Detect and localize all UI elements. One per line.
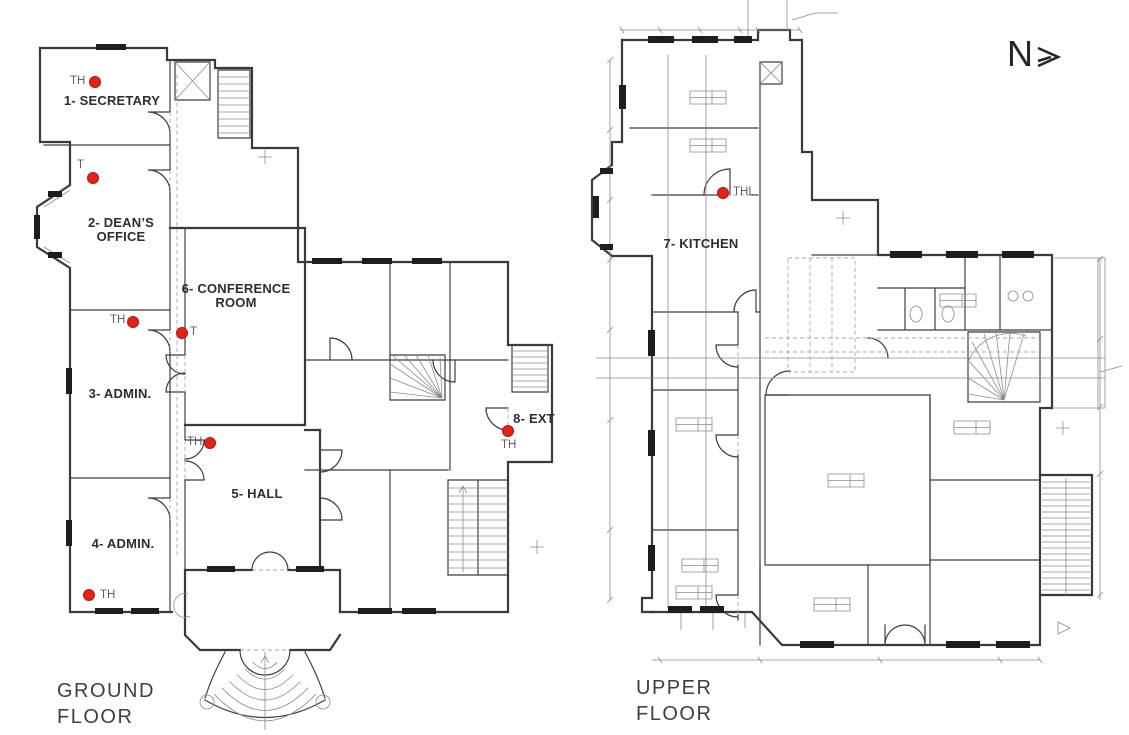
room-label-text: 8- EXT	[513, 412, 555, 426]
sensor-dot-hall	[204, 437, 216, 449]
sensor-label-hall: TH	[187, 436, 202, 448]
upper-floor-linework	[592, 0, 1122, 663]
room-label-admin-4: 4- ADMIN.	[92, 537, 155, 551]
room-label-ext: 8- EXT	[513, 412, 555, 426]
north-indicator: N	[1007, 36, 1061, 72]
room-label-secretary: 1- SECRETARY	[64, 94, 160, 108]
room-label-admin-3: 3- ADMIN.	[89, 387, 152, 401]
sensor-dot-conference-room	[176, 327, 188, 339]
room-label-text: 4- ADMIN.	[92, 537, 155, 551]
room-label-text: 6- CONFERENCE	[182, 282, 291, 296]
sensor-dot-admin-3	[127, 316, 139, 328]
sensor-label-conference-room: T	[190, 326, 197, 338]
sensor-label-admin-4: TH	[100, 589, 115, 601]
plan-linework	[0, 0, 1129, 735]
sensor-label-admin-3: TH	[110, 314, 125, 326]
sensor-dot-admin-4	[83, 589, 95, 601]
north-arrow-icon	[1035, 45, 1061, 69]
sensor-dot-kitchen	[717, 187, 729, 199]
room-label-text: 5- HALL	[231, 487, 282, 501]
room-label-text: 1- SECRETARY	[64, 94, 160, 108]
sensor-label-kitchen: THL	[733, 186, 755, 198]
floor-title-line: FLOOR	[636, 701, 712, 727]
sensor-label-deans-office: T	[77, 159, 84, 171]
room-label-text: 7- KITCHEN	[664, 237, 739, 251]
floor-title-line: UPPER	[636, 675, 712, 701]
room-label-text: ROOM	[182, 296, 291, 310]
room-label-conference-room: 6- CONFERENCE ROOM	[182, 282, 291, 310]
room-label-text: 3- ADMIN.	[89, 387, 152, 401]
north-label: N	[1007, 36, 1033, 72]
room-label-kitchen: 7- KITCHEN	[664, 237, 739, 251]
sensor-dot-deans-office	[87, 172, 99, 184]
sensor-dot-ext	[502, 425, 514, 437]
floor-plan-drawing: 1- SECRETARY 2- DEAN’S OFFICE 6- CONFERE…	[0, 0, 1129, 735]
floor-title-line: GROUND	[57, 678, 155, 704]
room-label-text: 2- DEAN’S	[88, 216, 154, 230]
room-label-text: OFFICE	[88, 230, 154, 244]
sensor-label-ext: TH	[501, 439, 516, 451]
sensor-label-secretary: TH	[70, 75, 85, 87]
ground-floor-title: GROUND FLOOR	[57, 678, 155, 730]
room-label-deans-office: 2- DEAN’S OFFICE	[88, 216, 154, 244]
room-label-hall: 5- HALL	[231, 487, 282, 501]
sensor-dot-secretary	[89, 76, 101, 88]
floor-title-line: FLOOR	[57, 704, 155, 730]
upper-floor-title: UPPER FLOOR	[636, 675, 712, 727]
